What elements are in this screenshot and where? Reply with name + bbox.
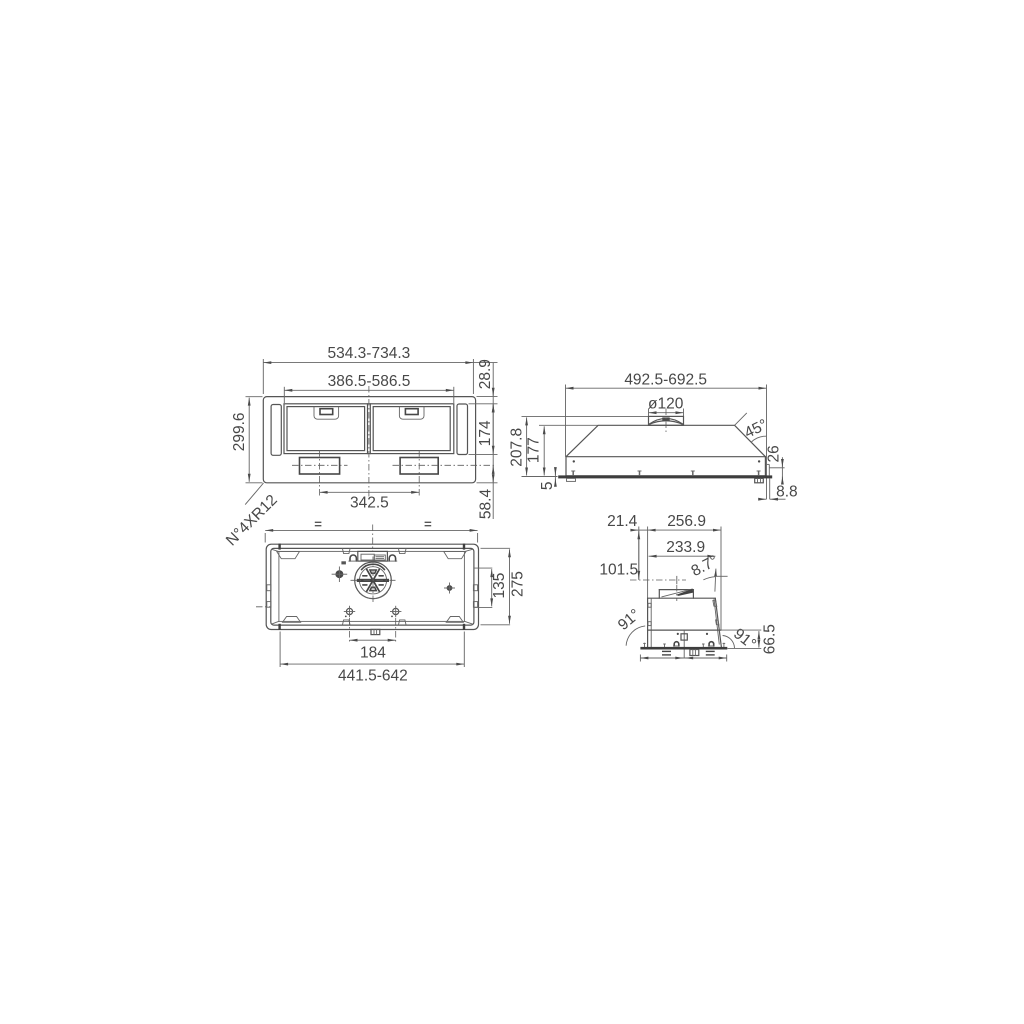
- svg-text:386.5-586.5: 386.5-586.5: [328, 373, 411, 390]
- svg-text:492.5-692.5: 492.5-692.5: [624, 371, 707, 388]
- svg-text:534.3-734.3: 534.3-734.3: [328, 345, 411, 362]
- svg-text:342.5: 342.5: [350, 495, 389, 512]
- svg-text:N°4XR12: N°4XR12: [223, 492, 281, 550]
- svg-text:299.6: 299.6: [231, 413, 248, 452]
- svg-text:441.5-642: 441.5-642: [338, 667, 408, 684]
- svg-text:21.4: 21.4: [607, 513, 638, 530]
- svg-text:5: 5: [539, 481, 556, 490]
- svg-text:275: 275: [509, 571, 526, 597]
- svg-text:91°: 91°: [615, 606, 644, 634]
- svg-text:66.5: 66.5: [761, 624, 778, 654]
- svg-text:101.5: 101.5: [599, 562, 638, 579]
- svg-text:28.9: 28.9: [477, 359, 494, 389]
- svg-text:177: 177: [525, 437, 542, 463]
- svg-text:135: 135: [491, 573, 508, 599]
- svg-text:58.4: 58.4: [477, 489, 494, 520]
- svg-text:256.9: 256.9: [667, 513, 706, 530]
- svg-text:207.8: 207.8: [508, 428, 525, 467]
- svg-text:184: 184: [360, 644, 386, 661]
- svg-text:233.9: 233.9: [666, 539, 705, 556]
- svg-text:174: 174: [477, 420, 494, 446]
- svg-text:8.8: 8.8: [776, 484, 798, 501]
- svg-text:26: 26: [765, 445, 782, 462]
